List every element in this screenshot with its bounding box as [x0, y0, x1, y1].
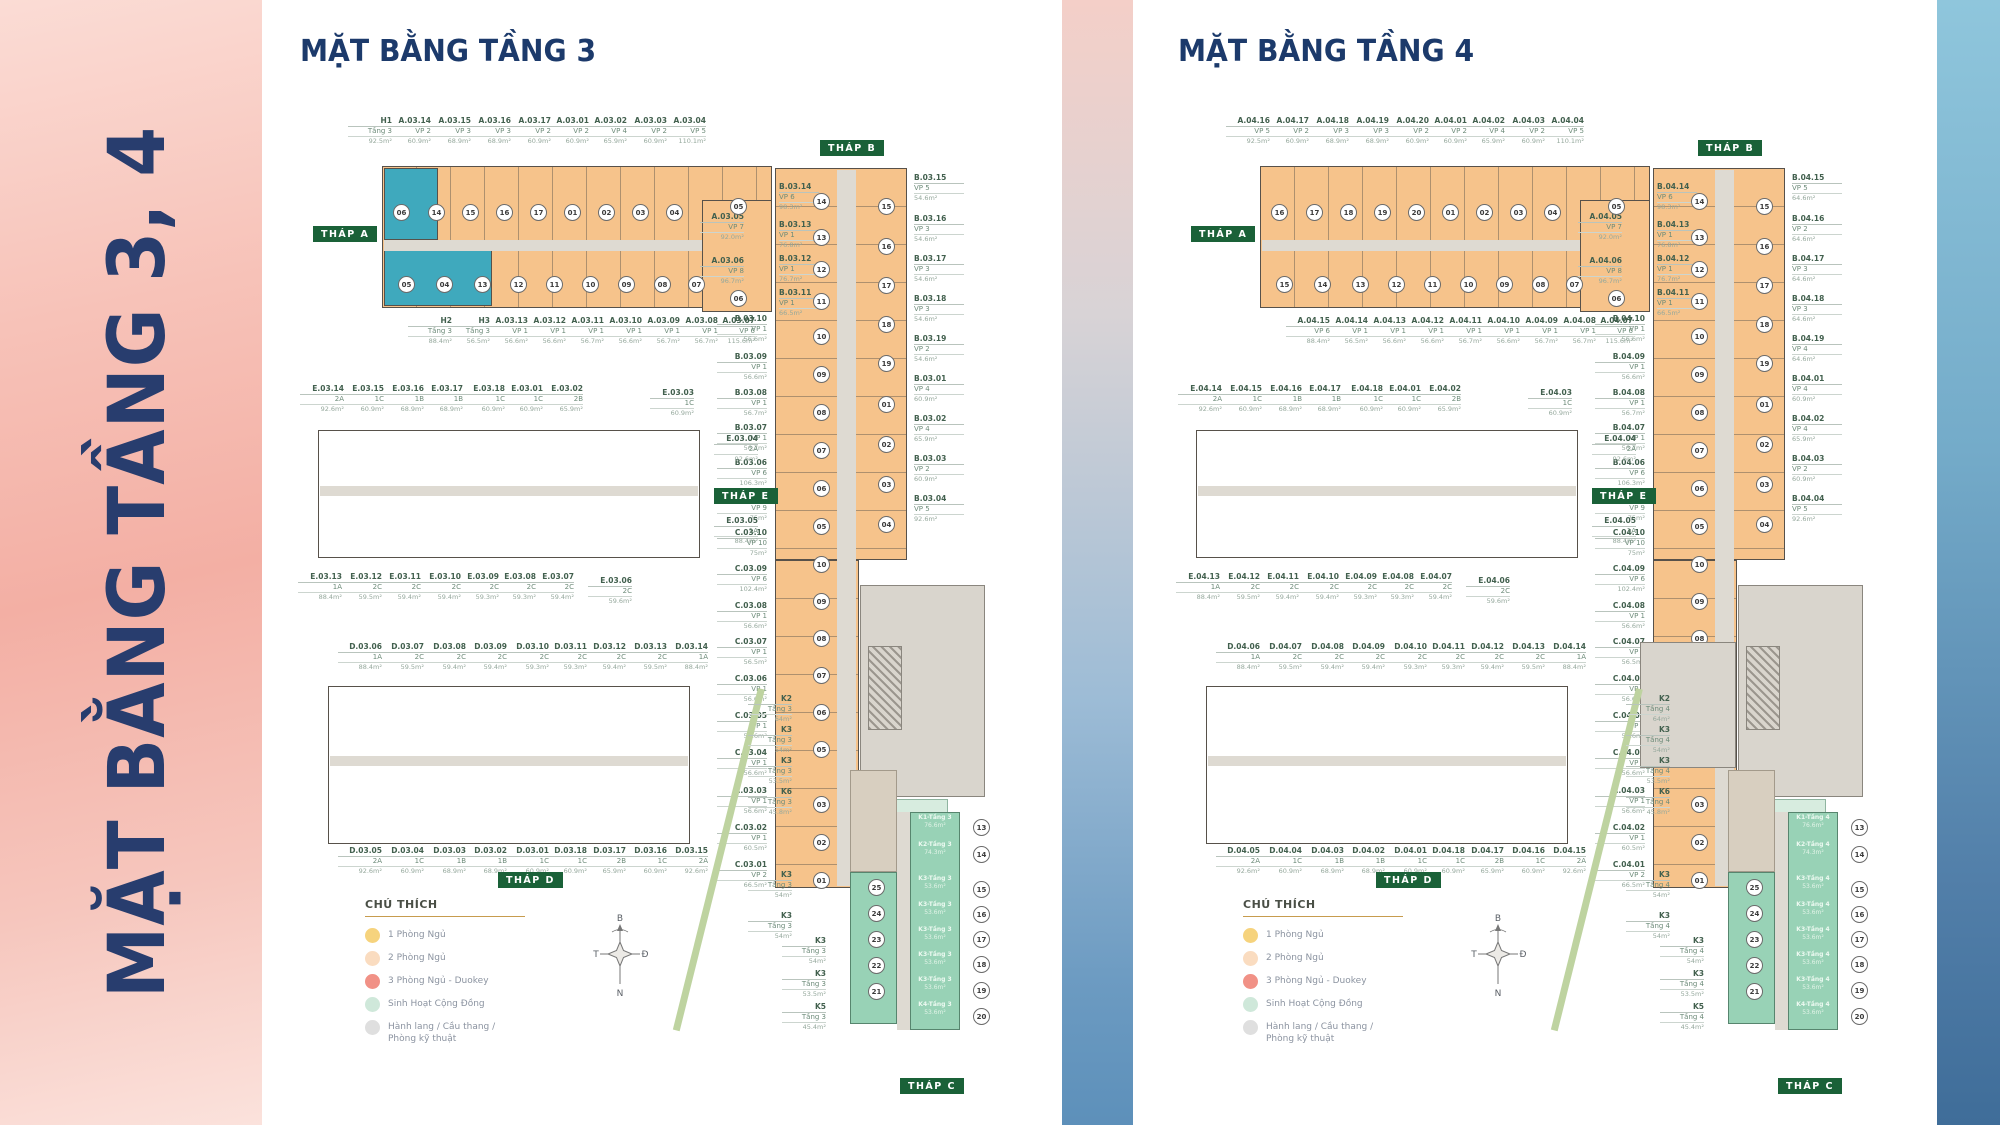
unit-area: 60.9m²: [623, 867, 667, 875]
unit-number: 13: [1851, 819, 1868, 836]
unit-area: 53.6m²: [912, 984, 958, 992]
unit-number: 10: [813, 328, 830, 345]
unit-area: 64m²: [1626, 715, 1670, 723]
unit-label: D.04.161C60.9m²: [1501, 846, 1545, 875]
unit-label: B.04.19VP 464.6m²: [1792, 334, 1842, 363]
unit-area: 92.5m²: [348, 137, 392, 145]
unit-id: C.04.07: [1595, 637, 1645, 648]
unit-area: 68.9m²: [1258, 405, 1302, 413]
unit-id: D.04.09: [1341, 642, 1385, 653]
unit-label: H1Tầng 392.5m²: [348, 116, 392, 145]
unit-area: 59.4m²: [1300, 663, 1344, 671]
unit-type: 2B: [582, 857, 626, 867]
unit-number: 18: [1340, 204, 1357, 221]
unit-number: 16: [973, 906, 990, 923]
unit-id: E.04.02: [1417, 384, 1461, 395]
unit-label: B.03.09VP 156.6m²: [717, 352, 767, 381]
unit-id: B.04.01: [1792, 374, 1842, 385]
legend-swatch-2-bedroom: [365, 951, 380, 966]
unit-label: E.04.142A92.6m²: [1178, 384, 1222, 413]
legend-swatch-corridor-stairs-technical: [365, 1020, 380, 1035]
unit-type: 1A: [298, 583, 342, 593]
unit-type: 2A: [300, 395, 344, 405]
unit-number: 23: [868, 931, 885, 948]
unit-type: VP 1: [717, 612, 767, 622]
unit-type: 1A: [1542, 653, 1586, 663]
unit-label: A.04.18VP 368.9m²: [1305, 116, 1349, 145]
unit-area: 68.9m²: [467, 137, 511, 145]
unit-id: D.03.07: [380, 642, 424, 653]
unit-id: D.03.03: [422, 846, 466, 857]
legend-label: 3 Phòng Ngủ - Duokey: [1266, 974, 1367, 988]
unit-label: B.03.03VP 260.9m²: [914, 454, 964, 483]
unit-label: K3Tầng 353.5m²: [748, 756, 792, 785]
unit-label: K3Tầng 454m²: [1626, 870, 1670, 899]
unit-area: 54.6m²: [914, 194, 964, 202]
unit-area: 68.9m²: [1305, 137, 1349, 145]
unit-label: A.04.03VP 260.9m²: [1501, 116, 1545, 145]
unit-id: B.03.04: [914, 494, 964, 505]
unit-id: K2-Tầng 3: [918, 841, 951, 848]
unit-area: 59.3m²: [543, 663, 587, 671]
compass-north-label: B: [617, 914, 623, 924]
unit-area: 56.6m²: [1595, 622, 1645, 630]
unit-id: K3: [1626, 870, 1670, 881]
unit-area: 92.6m²: [1592, 455, 1636, 463]
unit-number: 05: [730, 198, 747, 215]
unit-type: 2A: [664, 857, 708, 867]
unit-area: 65.9m²: [1461, 137, 1505, 145]
compass-west-label: T: [592, 950, 599, 960]
unit-label: D.03.141A88.4m²: [664, 642, 708, 671]
unit-id: E.03.13: [298, 572, 342, 583]
unit-label: B.04.04VP 592.6m²: [1792, 494, 1842, 523]
unit-area: 76.8m²: [1657, 241, 1697, 249]
unit-area: 65.9m²: [1417, 405, 1461, 413]
unit-id: E.04.11: [1255, 572, 1299, 583]
unit-label: B.03.08VP 156.7m²: [717, 388, 767, 417]
unit-number: 02: [813, 834, 830, 851]
unit-label: E.03.031C60.9m²: [650, 388, 694, 417]
unit-id: K3: [1626, 756, 1670, 767]
unit-number: 09: [1496, 276, 1513, 293]
unit-label: B.03.04VP 592.6m²: [914, 494, 964, 523]
unit-id: K3: [748, 911, 792, 922]
unit-type: VP 4: [1461, 127, 1505, 137]
unit-number: 11: [813, 293, 830, 310]
unit-number: 16: [1271, 204, 1288, 221]
unit-area: 75m²: [717, 549, 767, 557]
unit-type: Tầng 3: [782, 947, 826, 957]
unit-label: K5Tầng 445.4m²: [1660, 1002, 1704, 1031]
unit-id: E.03.16: [380, 384, 424, 395]
unit-label: D.03.021B68.9m²: [463, 846, 507, 875]
unit-id: D.03.14: [664, 642, 708, 653]
unit-id: A.04.04: [1540, 116, 1584, 127]
unit-area: 68.9m²: [1300, 867, 1344, 875]
unit-area: 59.4m²: [1255, 593, 1299, 601]
unit-label: A.03.06VP 896.7m²: [700, 256, 744, 285]
legend-item-2-bedroom: 2 Phòng Ngủ: [1243, 951, 1324, 966]
k-unit-label: K3-Tầng 453.6m²: [1790, 976, 1836, 991]
unit-type: 1B: [422, 857, 466, 867]
unit-id: B.03.19: [914, 334, 964, 345]
unit-type: 2B: [539, 395, 583, 405]
unit-area: 59.5m²: [623, 663, 667, 671]
k-unit-label: K4-Tầng 353.6m²: [912, 1001, 958, 1016]
unit-id: K3-Tầng 3: [918, 901, 951, 908]
unit-id: B.03.10: [717, 314, 767, 325]
unit-number: 04: [1756, 516, 1773, 533]
unit-number: 12: [813, 261, 830, 278]
unit-id: K3-Tầng 4: [1796, 901, 1829, 908]
unit-label: E.04.112C59.4m²: [1255, 572, 1299, 601]
unit-id: E.04.07: [1408, 572, 1452, 583]
legend-swatch-3-bedroom-duokey: [365, 974, 380, 989]
unit-label: D.04.132C59.5m²: [1501, 642, 1545, 671]
unit-label: E.03.072C59.4m²: [530, 572, 574, 601]
unit-type: Tầng 3: [748, 922, 792, 932]
unit-id: E.03.17: [419, 384, 463, 395]
unit-type: VP 3: [427, 127, 471, 137]
unit-id: B.03.18: [914, 294, 964, 305]
unit-label: D.03.031B68.9m²: [422, 846, 466, 875]
unit-area: 53.6m²: [1790, 934, 1836, 942]
unit-number: 03: [632, 204, 649, 221]
unit-id: E.03.11: [377, 572, 421, 583]
unit-area: 60.9m²: [1265, 137, 1309, 145]
unit-type: 1A: [664, 653, 708, 663]
unit-area: 60.9m²: [1792, 395, 1842, 403]
unit-area: 68.9m²: [1345, 137, 1389, 145]
unit-id: A.04.06: [1578, 256, 1622, 267]
unit-area: 60.9m²: [1528, 409, 1572, 417]
unit-area: 110.1m²: [662, 137, 706, 145]
unit-type: 2C: [1258, 653, 1302, 663]
unit-number: 08: [1532, 276, 1549, 293]
unit-label: B.03.02VP 465.9m²: [914, 414, 964, 443]
unit-area: 66.5m²: [779, 309, 819, 317]
unit-id: B.04.08: [1595, 388, 1645, 399]
unit-number: 01: [1756, 396, 1773, 413]
unit-type: VP 8: [700, 267, 744, 277]
unit-id: E.04.16: [1258, 384, 1302, 395]
unit-type: 2C: [463, 653, 507, 663]
unit-label: B.03.10VP 156.6m²: [717, 314, 767, 343]
unit-number: 17: [1851, 931, 1868, 948]
unit-id: C.04.08: [1595, 601, 1645, 612]
unit-id: B.04.07: [1595, 423, 1645, 434]
legend-label: 1 Phòng Ngủ: [388, 928, 446, 942]
unit-id: A.03.14: [387, 116, 431, 127]
unit-type: 2A: [338, 857, 382, 867]
unit-id: D.03.17: [582, 846, 626, 857]
unit-id: A.03.04: [662, 116, 706, 127]
unit-label: B.04.16VP 264.6m²: [1792, 214, 1842, 243]
unit-id: B.04.13: [1657, 220, 1697, 231]
unit-id: B.04.09: [1595, 352, 1645, 363]
unit-type: VP 6: [1595, 575, 1645, 585]
unit-type: VP 1: [717, 325, 767, 335]
sheet-title: MẶT BẰNG TẦNG 3, 4: [93, 126, 183, 998]
compass-south-label: N: [1495, 989, 1502, 999]
unit-label: B.03.16VP 354.6m²: [914, 214, 964, 243]
unit-type: VP 2: [914, 345, 964, 355]
tower-badge-d: THÁP D: [1376, 872, 1441, 888]
legend-swatch-3-bedroom-duokey: [1243, 974, 1258, 989]
unit-area: 60.9m²: [1792, 475, 1842, 483]
compass-south-label: N: [617, 989, 624, 999]
unit-area: 56.6m²: [717, 622, 767, 630]
unit-id: B.03.12: [779, 254, 819, 265]
unit-id: D.03.18: [543, 846, 587, 857]
unit-id: K3: [748, 725, 792, 736]
unit-area: 45.8m²: [748, 808, 792, 816]
unit-id: A.04.19: [1345, 116, 1389, 127]
unit-label: C.04.08VP 156.6m²: [1595, 601, 1645, 630]
unit-id: B.03.16: [914, 214, 964, 225]
unit-type: 2C: [380, 653, 424, 663]
unit-type: 2C: [543, 653, 587, 663]
unit-id: B.04.14: [1657, 182, 1697, 193]
unit-area: 76.7m²: [779, 275, 819, 283]
unit-label: E.03.171B68.9m²: [419, 384, 463, 413]
unit-number: 07: [813, 667, 830, 684]
unit-id: E.03.03: [650, 388, 694, 399]
unit-label: E.03.051A88.4m²: [714, 516, 758, 545]
unit-area: 106.3m²: [717, 479, 767, 487]
unit-label: A.03.14VP 260.9m²: [387, 116, 431, 145]
unit-area: 53.6m²: [912, 883, 958, 891]
unit-label: D.04.122C59.4m²: [1460, 642, 1504, 671]
unit-id: K5: [782, 1002, 826, 1013]
unit-id: D.04.06: [1216, 642, 1260, 653]
unit-label: K3Tầng 454m²: [1660, 936, 1704, 965]
unit-id: E.04.15: [1218, 384, 1262, 395]
unit-area: 92.6m²: [1216, 867, 1260, 875]
unit-label: B.03.17VP 354.6m²: [914, 254, 964, 283]
unit-number: 19: [1756, 355, 1773, 372]
unit-number: 06: [1691, 480, 1708, 497]
unit-area: 54.6m²: [914, 355, 964, 363]
unit-id: D.03.02: [463, 846, 507, 857]
unit-label: B.04.18VP 364.6m²: [1792, 294, 1842, 323]
unit-id: E.04.17: [1297, 384, 1341, 395]
legend-label: Hành lang / Cầu thang / Phòng kỹ thuật: [1266, 1020, 1373, 1045]
unit-area: 60.9m²: [387, 137, 431, 145]
unit-area: 60.9m²: [650, 409, 694, 417]
unit-area: 65.9m²: [1792, 435, 1842, 443]
unit-id: C.03.08: [717, 601, 767, 612]
unit-type: VP 9: [1595, 504, 1645, 514]
unit-label: E.04.011C60.9m²: [1377, 384, 1421, 413]
unit-label: E.03.022B65.9m²: [539, 384, 583, 413]
unit-type: 1B: [1258, 395, 1302, 405]
legend-swatch-community: [1243, 997, 1258, 1012]
unit-id: E.03.07: [530, 572, 574, 583]
unit-number: 05: [813, 518, 830, 535]
unit-id: D.04.12: [1460, 642, 1504, 653]
unit-area: 60.9m²: [1218, 405, 1262, 413]
unit-type: 2C: [1466, 587, 1510, 597]
tower-badge-c: THÁP C: [1778, 1078, 1842, 1094]
unit-number: 21: [1746, 983, 1763, 1000]
legend-swatch-community: [365, 997, 380, 1012]
unit-type: VP 1: [1595, 612, 1645, 622]
unit-number: 01: [813, 872, 830, 889]
unit-area: 92.0m²: [1578, 233, 1622, 241]
unit-number: 02: [1756, 436, 1773, 453]
k-unit-label: K4-Tầng 453.6m²: [1790, 1001, 1836, 1016]
unit-area: 45.4m²: [782, 1023, 826, 1031]
unit-number: 13: [474, 276, 491, 293]
unit-number: 09: [813, 366, 830, 383]
unit-number: 03: [813, 796, 830, 813]
unit-area: 60.9m²: [623, 137, 667, 145]
unit-id: D.03.06: [338, 642, 382, 653]
unit-number: 14: [973, 846, 990, 863]
unit-type: 1B: [1297, 395, 1341, 405]
tower-badge-b: THÁP B: [820, 140, 884, 156]
unit-type: VP 3: [914, 305, 964, 315]
unit-type: VP 3: [914, 265, 964, 275]
unit-type: VP 5: [914, 184, 964, 194]
unit-id: D.03.16: [623, 846, 667, 857]
tower-badge-e: THÁP E: [1592, 488, 1656, 504]
unit-label: D.03.082C59.4m²: [422, 642, 466, 671]
floor-3-panel: MẶT BẰNG TẦNG 3H1Tầng 392.5m²A.03.14VP 2…: [262, 0, 1062, 1125]
unit-area: 92.6m²: [664, 867, 708, 875]
unit-label: D.03.112C59.3m²: [543, 642, 587, 671]
unit-id: H1: [348, 116, 392, 127]
unit-type: Tầng 4: [1626, 922, 1670, 932]
unit-id: E.03.12: [338, 572, 382, 583]
unit-id: B.03.08: [717, 388, 767, 399]
unit-id: A.03.15: [427, 116, 471, 127]
unit-id: E.04.12: [1216, 572, 1260, 583]
unit-id: K3-Tầng 4: [1796, 976, 1829, 983]
unit-number: 06: [730, 290, 747, 307]
unit-type: 1C: [1377, 395, 1421, 405]
unit-number: 10: [813, 556, 830, 573]
right-gradient-edge: [1937, 0, 2000, 1125]
unit-id: D.04.05: [1216, 846, 1260, 857]
unit-type: VP 4: [914, 385, 964, 395]
unit-area: 59.4m²: [1408, 593, 1452, 601]
legend-item-corridor-stairs-technical: Hành lang / Cầu thang / Phòng kỹ thuật: [1243, 1020, 1373, 1045]
unit-id: D.04.07: [1258, 642, 1302, 653]
unit-number: 25: [868, 879, 885, 896]
unit-type: VP 5: [914, 505, 964, 515]
unit-type: VP 7: [700, 223, 744, 233]
unit-area: 53.6m²: [1790, 909, 1836, 917]
unit-number: 15: [1276, 276, 1293, 293]
unit-type: 2C: [582, 653, 626, 663]
unit-label: D.03.061A88.4m²: [338, 642, 382, 671]
unit-number: 15: [462, 204, 479, 221]
unit-id: K1-Tầng 4: [1796, 814, 1829, 821]
unit-label: E.03.011C60.9m²: [499, 384, 543, 413]
unit-id: K3-Tầng 4: [1796, 875, 1829, 882]
unit-number: 16: [1851, 906, 1868, 923]
unit-area: 92.6m²: [300, 405, 344, 413]
unit-label: B.04.15VP 564.6m²: [1792, 173, 1842, 202]
floor-4-panel: MẶT BẰNG TẦNG 4A.04.16VP 592.5m²A.04.17V…: [1140, 0, 1940, 1125]
unit-type: Tầng 4: [1626, 798, 1670, 808]
compass-east-label: Đ: [642, 950, 649, 960]
corridor-tower-d: [330, 756, 688, 766]
unit-area: 96.7m²: [700, 277, 744, 285]
unit-number: 17: [1306, 204, 1323, 221]
unit-area: 56.7m²: [717, 409, 767, 417]
unit-label: A.04.17VP 260.9m²: [1265, 116, 1309, 145]
unit-label: A.03.05VP 792.0m²: [700, 212, 744, 241]
legend-swatch-corridor-stairs-technical: [1243, 1020, 1258, 1035]
unit-label: E.04.042A92.6m²: [1592, 434, 1636, 463]
k-unit-label: K3-Tầng 453.6m²: [1790, 951, 1836, 966]
unit-label: E.03.151C60.9m²: [340, 384, 384, 413]
unit-number: 05: [1691, 518, 1708, 535]
unit-area: 53.6m²: [912, 1009, 958, 1017]
unit-area: 59.4m²: [530, 593, 574, 601]
unit-label: D.03.092C59.4m²: [463, 642, 507, 671]
unit-label: B.04.02VP 465.9m²: [1792, 414, 1842, 443]
unit-type: 2A: [1542, 857, 1586, 867]
unit-number: 14: [1691, 193, 1708, 210]
tower-badge-e: THÁP E: [714, 488, 778, 504]
unit-type: VP 1: [717, 363, 767, 373]
unit-label: D.03.122C59.4m²: [582, 642, 626, 671]
unit-type: VP 3: [1792, 265, 1842, 275]
unit-label: B.04.10VP 156.6m²: [1595, 314, 1645, 343]
unit-area: 60.9m²: [1377, 405, 1421, 413]
legend-swatch-1-bedroom: [1243, 928, 1258, 943]
unit-area: 53.5m²: [782, 990, 826, 998]
unit-label: E.04.051A88.4m²: [1592, 516, 1636, 545]
unit-number: 19: [878, 355, 895, 372]
unit-area: 56.6m²: [1595, 335, 1645, 343]
unit-area: 64m²: [748, 715, 792, 723]
unit-type: 1C: [340, 395, 384, 405]
unit-area: 56.6m²: [1595, 373, 1645, 381]
unit-id: C.03.07: [717, 637, 767, 648]
unit-number: 10: [1460, 276, 1477, 293]
unit-type: 2B: [1460, 857, 1504, 867]
legend-item-3-bedroom-duokey: 3 Phòng Ngủ - Duokey: [365, 974, 489, 989]
unit-id: B.03.09: [717, 352, 767, 363]
unit-area: 110.1m²: [1540, 137, 1584, 145]
unit-id: D.04.03: [1300, 846, 1344, 857]
corridor-k: [1775, 812, 1788, 1030]
unit-number: 02: [878, 436, 895, 453]
unit-type: 1B: [380, 395, 424, 405]
unit-label: D.04.041C60.9m²: [1258, 846, 1302, 875]
k-unit-label: K3-Tầng 453.6m²: [1790, 926, 1836, 941]
tower-badge-a: THÁP A: [1191, 226, 1255, 242]
unit-label: A.04.05VP 792.0m²: [1578, 212, 1622, 241]
unit-type: 1A: [1216, 653, 1260, 663]
legend-label: 2 Phòng Ngủ: [388, 951, 446, 965]
unit-id: D.03.09: [463, 642, 507, 653]
unit-label: D.03.172B65.9m²: [582, 846, 626, 875]
unit-id: D.04.02: [1341, 846, 1385, 857]
unit-type: 2C: [1300, 653, 1344, 663]
compass-west-label: T: [1470, 950, 1477, 960]
elevator-core-hatch: [1746, 646, 1780, 730]
unit-area: 64.6m²: [1792, 235, 1842, 243]
unit-type: 2A: [1178, 395, 1222, 405]
unit-area: 59.5m²: [1216, 593, 1260, 601]
